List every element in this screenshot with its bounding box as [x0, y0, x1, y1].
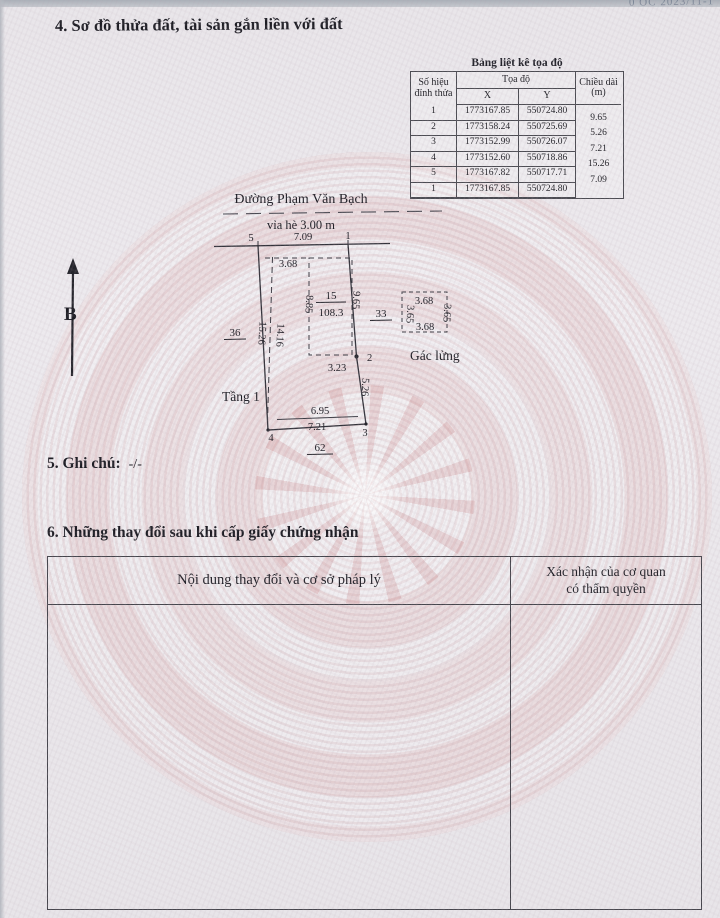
coord-cell-y: 550724.80	[519, 183, 576, 199]
parcel-fraction-line	[316, 302, 346, 303]
mezzanine-dim-right: 3.65	[441, 304, 453, 323]
coord-cell-id: 3	[411, 136, 457, 152]
coord-length-value: 15.26	[576, 160, 621, 170]
mezzanine-dim-top: 3.68	[415, 296, 433, 307]
coord-header-x: X	[457, 89, 519, 105]
scanned-certificate-page: 0 OC 2023/11-1 4. Sơ đồ thửa đất, tài sả…	[0, 0, 720, 918]
mezzanine-dim-bottom: 3.68	[416, 322, 434, 333]
coord-cell-y: 550724.80	[519, 105, 576, 121]
section5-value: -/-	[129, 457, 142, 472]
neighbor-left-number: 36	[230, 327, 242, 339]
neighbor-right-underline	[370, 320, 392, 321]
dim-building-bottom: 3.23	[328, 363, 346, 374]
parcel-number: 15	[326, 290, 338, 302]
coordinate-table: Bảng liệt kê tọa độ Số hiệu đỉnh thửa Tọ…	[410, 57, 624, 199]
plot-top-boundary	[214, 244, 390, 247]
changes-col2-header-line1: Xác nhận của cơ quan	[546, 564, 666, 581]
vertex3-label: 3	[362, 428, 367, 439]
sidewalk-label: vỉa hè 3.00 m	[267, 218, 335, 232]
coord-header-vertex-line1: Số hiệu	[418, 78, 448, 89]
north-arrow-head	[67, 258, 79, 274]
coord-cell-y: 550725.69	[519, 121, 576, 137]
coord-cell-id: 4	[411, 152, 457, 168]
scan-datestamp: 0 OC 2023/11-1	[629, 0, 714, 9]
plot-diagram: Đường Phạm Văn Bạch vỉa hè 3.00 m 5 1 2 …	[195, 186, 505, 460]
coord-cell-x: 1773167.82	[457, 167, 519, 183]
changes-col2-cell	[511, 605, 701, 909]
coord-cell-id: 1	[411, 105, 457, 121]
vertex3-dot	[364, 422, 367, 425]
coordinate-table-title: Bảng liệt kê tọa độ	[410, 57, 624, 69]
changes-table: Nội dung thay đổi và cơ sở pháp lý Xác n…	[47, 556, 702, 910]
coord-header-y: Y	[519, 89, 576, 105]
coord-header-length-line2: (m)	[591, 88, 605, 99]
changes-col1-header: Nội dung thay đổi và cơ sở pháp lý	[48, 557, 511, 604]
vertex2-label: 2	[367, 353, 372, 364]
coord-length-value: 7.21	[576, 145, 621, 155]
coord-length-values: 9.655.267.2115.267.09	[576, 105, 621, 198]
dim-right-upper: 9.65	[350, 291, 362, 310]
dim-right-lower: 5.26	[359, 378, 371, 397]
dim-bottom-inner: 6.95	[311, 406, 329, 417]
mezzanine-dim-left: 3.65	[404, 305, 416, 324]
street-name-label: Đường Phạm Văn Bạch	[234, 192, 367, 207]
section4-title: 4. Sơ đồ thửa đất, tài sản gắn liền với …	[55, 14, 343, 36]
coord-cell-y: 550718.86	[519, 152, 576, 168]
coordinate-table-grid: Số hiệu đỉnh thửa Tọa độ X Y Chiều dài (…	[410, 71, 624, 199]
dim-left-outer: 15.26	[255, 321, 267, 345]
dim-building-top: 3.68	[279, 259, 297, 270]
floor1-label: Tầng 1	[222, 389, 260, 404]
coord-cell-x: 1773152.60	[457, 152, 519, 168]
changes-table-body	[48, 605, 701, 909]
north-label: B	[64, 304, 77, 325]
coord-cell-x: 1773152.99	[457, 136, 519, 152]
changes-col1-cell	[48, 605, 511, 909]
dim-left-inner: 14.16	[273, 323, 285, 347]
dim-building-left: 8.85	[303, 295, 315, 314]
coord-length-value: 7.09	[576, 176, 621, 186]
coord-header-vertex-line2: đỉnh thửa	[415, 89, 453, 100]
neighbor-bottom-underline	[307, 454, 333, 455]
coord-header-coords: Tọa độ	[457, 72, 576, 89]
coord-length-value: 9.65	[576, 114, 621, 124]
street-centerline	[223, 211, 442, 214]
coord-length-value: 5.26	[576, 129, 621, 139]
north-arrow: B	[52, 258, 96, 383]
setback-left-line	[268, 257, 273, 421]
neighbor-right-number: 33	[376, 308, 388, 320]
coord-cell-y: 550717.71	[519, 167, 576, 183]
neighbor-bottom-number: 62	[315, 442, 326, 454]
vertex4-dot	[266, 428, 269, 431]
coord-cell-x: 1773158.24	[457, 121, 519, 137]
changes-table-header: Nội dung thay đổi và cơ sở pháp lý Xác n…	[48, 557, 701, 605]
vertex4-label: 4	[268, 433, 274, 444]
neighbor-left-underline	[224, 339, 246, 340]
dim-top: 7.09	[294, 232, 312, 243]
changes-col2-header-line2: có thẩm quyền	[566, 581, 645, 598]
coord-cell-y: 550726.07	[519, 136, 576, 152]
section5-label: 5. Ghi chú:	[47, 455, 121, 472]
vertex1-label: 1	[345, 231, 350, 242]
coord-cell-x: 1773167.85	[457, 105, 519, 121]
coord-cell-id: 5	[411, 167, 457, 183]
coord-header-length: Chiều dài (m)	[576, 72, 621, 105]
section5-note: 5. Ghi chú:-/-	[47, 455, 142, 473]
parcel-area: 108.3	[319, 307, 344, 319]
scan-edge-top	[0, 0, 720, 7]
vertex2-dot	[354, 354, 358, 358]
mezzanine-label: Gác lửng	[410, 348, 460, 363]
coord-header-vertex: Số hiệu đỉnh thửa	[411, 72, 457, 105]
changes-col2-header: Xác nhận của cơ quan có thẩm quyền	[511, 557, 701, 604]
scan-edge-left	[0, 0, 5, 918]
coord-cell-id: 2	[411, 121, 457, 137]
section6-title: 6. Những thay đổi sau khi cấp giấy chứng…	[47, 524, 358, 542]
vertex5-label: 5	[248, 233, 253, 244]
dim-bottom-outer: 7.21	[308, 422, 326, 433]
